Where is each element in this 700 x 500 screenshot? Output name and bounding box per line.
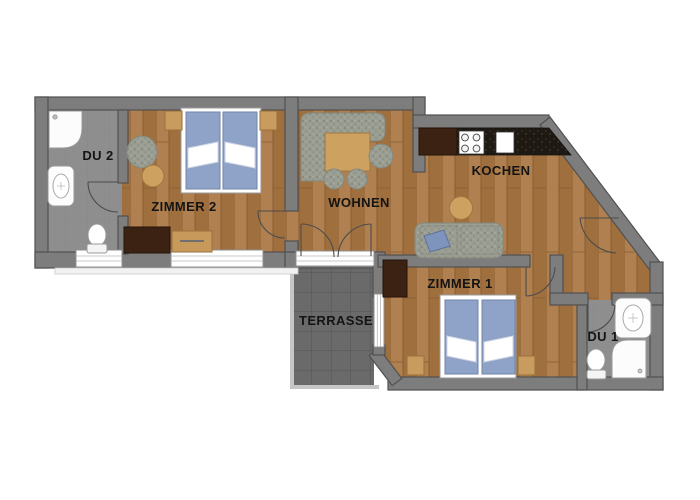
kitchen-cabinet — [419, 128, 457, 155]
toilet-bowl-du2 — [88, 224, 106, 246]
wall-bottom-right-block — [388, 377, 663, 390]
terrace-door-glazing — [296, 251, 374, 266]
stool-1 — [324, 169, 344, 189]
wall-zimmer2-wohnen-upper — [285, 97, 298, 211]
burner-icon — [473, 145, 480, 152]
room-label-du1: DU 1 — [580, 329, 626, 344]
burner-icon — [462, 145, 469, 152]
room-label-wohnen: WOHNEN — [322, 195, 396, 210]
armchair-zimmer2 — [127, 136, 157, 168]
shower-drain-icon — [638, 369, 642, 373]
room-label-zimmer1: ZIMMER 1 — [418, 276, 502, 291]
nightstand-right-zimmer1 — [518, 356, 535, 375]
wall-right — [650, 262, 663, 390]
room-label-du2: DU 2 — [76, 148, 120, 163]
nightstand-left-zimmer1 — [407, 356, 424, 375]
window-sill — [55, 268, 298, 274]
burner-icon — [462, 134, 469, 141]
kitchen-table — [450, 197, 473, 220]
shower-head-icon — [53, 115, 57, 119]
dining-table — [325, 133, 370, 171]
wall-zimmer1-du1 — [577, 305, 587, 390]
toilet-tank-du2 — [87, 244, 107, 253]
wall-du1-top-left — [550, 293, 588, 305]
terrace-border-left — [290, 268, 294, 389]
wall-kitchen-top — [413, 115, 549, 128]
room-label-terrasse: TERRASSE — [294, 313, 378, 328]
chair-right — [369, 144, 393, 168]
burner-icon — [473, 134, 480, 141]
wardrobe-zimmer1 — [383, 260, 407, 297]
side-table-zimmer2 — [142, 165, 164, 187]
toilet-bowl-du1 — [587, 349, 605, 371]
terrace-border-bottom — [290, 385, 379, 389]
nightstand-right-zimmer2 — [260, 111, 277, 130]
room-label-zimmer2: ZIMMER 2 — [142, 199, 226, 214]
room-label-kochen: KOCHEN — [466, 163, 536, 178]
kitchen-sink — [496, 132, 514, 153]
wall-left — [35, 97, 48, 268]
dresser-zimmer2 — [124, 227, 170, 253]
floorplan-canvas: DU 2 ZIMMER 2 WOHNEN KOCHEN ZIMMER 1 DU … — [0, 0, 700, 500]
floorplan-drawing — [0, 0, 700, 500]
stool-2 — [347, 169, 367, 189]
nightstand-left-zimmer2 — [165, 111, 182, 130]
wall-du2-divider-upper — [118, 110, 128, 183]
window-zimmer2 — [171, 250, 263, 267]
toilet-tank-du1 — [587, 370, 606, 379]
